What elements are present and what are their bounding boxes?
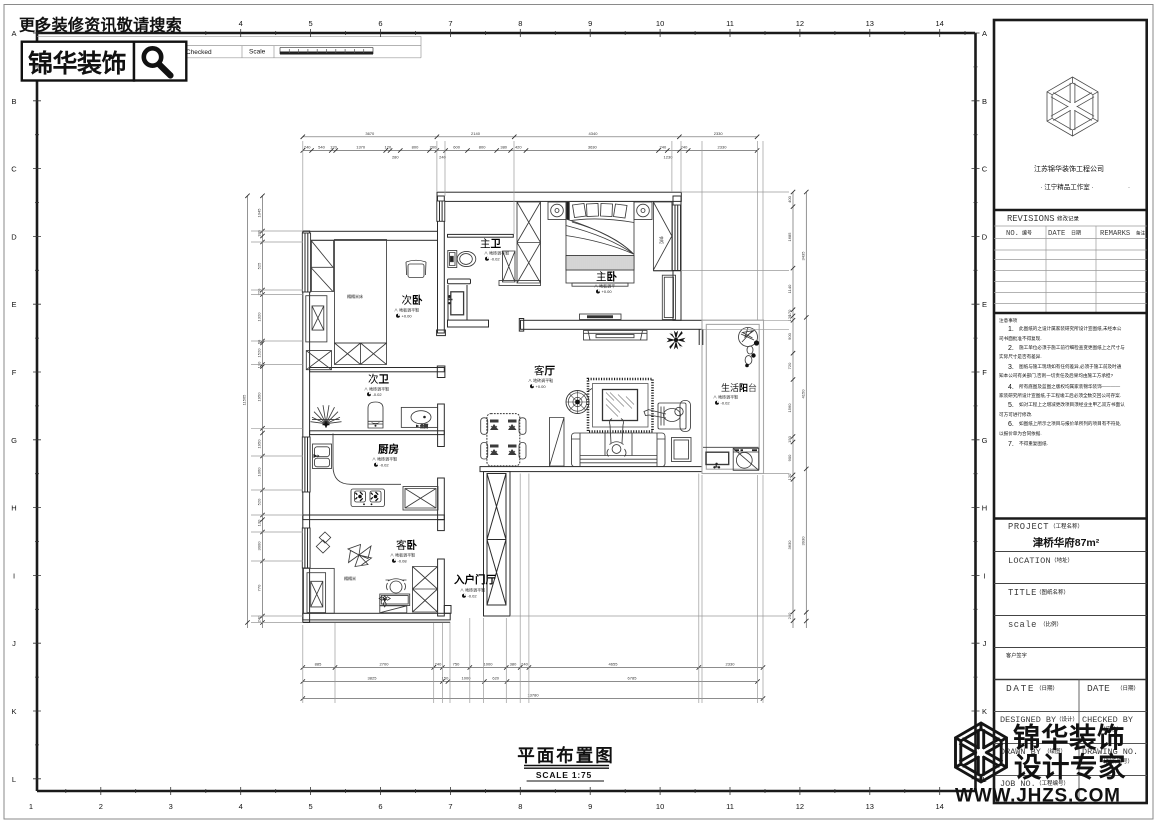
svg-text:Checked: Checked <box>186 49 212 56</box>
svg-text:REVISIONS: REVISIONS <box>1007 214 1055 224</box>
svg-text:E: E <box>11 300 16 309</box>
svg-text:∧ 地砖调平鞋: ∧ 地砖调平鞋 <box>484 250 509 256</box>
svg-text:800: 800 <box>412 145 419 150</box>
svg-text:K: K <box>982 707 987 716</box>
svg-text:14: 14 <box>936 19 944 28</box>
svg-text:240: 240 <box>439 154 446 159</box>
svg-text:3.: 3. <box>1008 364 1014 371</box>
svg-text:7: 7 <box>448 802 452 811</box>
svg-text:DATE: DATE <box>1006 683 1035 694</box>
svg-text:实际尺寸是否有差异.: 实际尺寸是否有差异. <box>999 353 1042 360</box>
svg-text:+0.00: +0.00 <box>536 384 547 389</box>
svg-text:DATE: DATE <box>1048 230 1065 238</box>
svg-text:620: 620 <box>492 676 499 681</box>
svg-text:2330: 2330 <box>718 145 728 150</box>
svg-text:380: 380 <box>500 145 507 150</box>
svg-text:7.: 7. <box>1008 441 1014 448</box>
svg-text:厨房: 厨房 <box>378 443 399 456</box>
svg-text:不得重复图纸.: 不得重复图纸. <box>1019 440 1048 447</box>
svg-text:1320: 1320 <box>257 312 262 322</box>
svg-text:A: A <box>982 29 987 38</box>
svg-text:3435: 3435 <box>800 251 805 261</box>
svg-text:所有底图及蓝图之版权均属家装锦华装饰————: 所有底图及蓝图之版权均属家装锦华装饰———— <box>1019 383 1120 390</box>
svg-text:1685: 1685 <box>787 232 792 242</box>
svg-text:3000: 3000 <box>257 541 262 551</box>
svg-text:主卧: 主卧 <box>596 270 618 283</box>
svg-text:台面: 台面 <box>420 423 428 429</box>
svg-text:-0.02: -0.02 <box>721 400 731 405</box>
svg-text:1140: 1140 <box>787 284 792 293</box>
svg-text:REMARKS: REMARKS <box>1100 230 1130 238</box>
svg-text:∧ 地砖调平鞋: ∧ 地砖调平鞋 <box>372 456 397 462</box>
svg-text:TITLE: TITLE <box>1008 588 1037 598</box>
svg-text:9: 9 <box>588 19 592 28</box>
svg-text:·: · <box>1128 185 1130 191</box>
svg-text:11565: 11565 <box>242 394 247 406</box>
svg-text:6: 6 <box>378 19 382 28</box>
svg-text:5: 5 <box>309 802 313 811</box>
svg-text:1060: 1060 <box>257 467 262 477</box>
svg-text:1000: 1000 <box>484 662 494 667</box>
svg-text:C: C <box>982 165 988 174</box>
svg-text:入户门厅: 入户门厅 <box>454 573 496 586</box>
svg-text:施工单位必须于施工前行细检查变更图纸上之尺寸与: 施工单位必须于施工前行细检查变更图纸上之尺寸与 <box>1019 344 1125 351</box>
svg-text:1370: 1370 <box>356 145 366 150</box>
svg-text:280: 280 <box>392 154 399 159</box>
svg-text:B: B <box>11 97 16 106</box>
svg-text:· 江宁精品工作室 ·: · 江宁精品工作室 · <box>1040 182 1093 191</box>
svg-text:750: 750 <box>453 662 460 667</box>
svg-text:+0.00: +0.00 <box>402 313 413 318</box>
svg-text:∧ 地砖调平鞋: ∧ 地砖调平鞋 <box>713 394 738 400</box>
svg-text:4: 4 <box>239 19 243 28</box>
svg-text:3: 3 <box>169 802 173 811</box>
svg-text:240: 240 <box>435 662 442 667</box>
svg-text:120: 120 <box>385 145 392 150</box>
svg-text:∧ 地砖调平鞋: ∧ 地砖调平鞋 <box>364 386 389 392</box>
svg-text:B: B <box>982 97 987 106</box>
svg-text:NO.: NO. <box>1006 230 1019 238</box>
svg-text:∧ 地砖调平鞋: ∧ 地砖调平鞋 <box>460 587 485 593</box>
svg-text:5.: 5. <box>1008 402 1014 409</box>
svg-text:1950: 1950 <box>257 392 262 402</box>
svg-text:A: A <box>11 29 16 38</box>
svg-text:G: G <box>11 436 17 445</box>
svg-text:锦华装饰: 锦华装饰 <box>28 49 127 78</box>
svg-text:生活阳台: 生活阳台 <box>721 382 757 393</box>
svg-text:4655: 4655 <box>609 662 619 667</box>
svg-text:榻榻米床: 榻榻米床 <box>347 293 363 299</box>
svg-text:240: 240 <box>521 662 528 667</box>
svg-text:12: 12 <box>796 802 804 811</box>
svg-text:6785: 6785 <box>628 676 638 681</box>
svg-text:1: 1 <box>29 802 33 811</box>
svg-text:-0.08: -0.08 <box>398 558 408 563</box>
svg-text:120: 120 <box>787 473 792 480</box>
svg-text:2330: 2330 <box>714 131 724 136</box>
svg-text:此图纸的之设计属家装研究所设计宣图纸,未经本公: 此图纸的之设计属家装研究所设计宣图纸,未经本公 <box>1019 325 1122 332</box>
svg-text:200: 200 <box>430 145 437 150</box>
svg-text:60: 60 <box>257 339 262 344</box>
svg-text:4.: 4. <box>1008 384 1014 391</box>
svg-text:家装研究所设计宣图纸,于工程竣工后必须全数交回公司存案.: 家装研究所设计宣图纸,于工程竣工后必须全数交回公司存案. <box>999 392 1121 399</box>
svg-text:9: 9 <box>588 802 592 811</box>
svg-text:150: 150 <box>442 676 449 681</box>
svg-text:11: 11 <box>726 19 734 28</box>
svg-text:H: H <box>11 504 16 513</box>
svg-text:K: K <box>11 707 16 716</box>
svg-text:1.: 1. <box>1008 326 1014 333</box>
svg-text:D: D <box>982 232 988 241</box>
svg-text:520: 520 <box>257 498 262 505</box>
svg-text:800: 800 <box>479 145 486 150</box>
svg-text:客厅: 客厅 <box>534 364 556 377</box>
svg-text:2700: 2700 <box>380 662 390 667</box>
svg-text:编号: 编号 <box>1022 230 1032 237</box>
svg-text:770: 770 <box>257 584 262 591</box>
svg-text:3670: 3670 <box>365 131 375 136</box>
svg-text:（比例）: （比例） <box>1040 620 1062 628</box>
svg-text:江苏锦华装饰工程公司: 江苏锦华装饰工程公司 <box>1034 164 1104 173</box>
svg-text:6.: 6. <box>1008 421 1014 428</box>
svg-text:5: 5 <box>309 19 313 28</box>
svg-text:DATE: DATE <box>1087 683 1110 694</box>
svg-text:（图纸名称）: （图纸名称） <box>1036 588 1069 596</box>
svg-text:平面布置图: 平面布置图 <box>517 746 615 766</box>
svg-text:240: 240 <box>681 145 688 150</box>
svg-text:津桥华府87m²: 津桥华府87m² <box>1033 536 1100 549</box>
svg-text:420: 420 <box>515 145 522 150</box>
svg-text:次卧: 次卧 <box>402 294 424 307</box>
svg-text:540: 540 <box>318 145 325 150</box>
svg-text:E: E <box>982 300 987 309</box>
svg-text:（日期）: （日期） <box>1036 685 1058 692</box>
svg-text:2330: 2330 <box>726 662 736 667</box>
svg-text:1560: 1560 <box>787 403 792 413</box>
svg-text:3630: 3630 <box>787 540 792 550</box>
svg-text:14: 14 <box>936 802 944 811</box>
svg-text:10: 10 <box>656 19 664 28</box>
svg-text:客卧: 客卧 <box>396 539 418 552</box>
svg-text:3825: 3825 <box>368 676 378 681</box>
svg-text:锦华装饰: 锦华装饰 <box>1013 722 1125 753</box>
svg-text:240: 240 <box>304 145 311 150</box>
svg-text:-0.02: -0.02 <box>468 593 478 598</box>
svg-text:4150: 4150 <box>800 389 805 399</box>
svg-text:720: 720 <box>787 362 792 369</box>
svg-text:3630: 3630 <box>588 145 598 150</box>
svg-text:J: J <box>983 639 987 648</box>
svg-text:图纸与施工现场如有任何差异,必须于施工前及时通: 图纸与施工现场如有任何差异,必须于施工前及时通 <box>1019 363 1122 370</box>
svg-text:12: 12 <box>796 19 804 28</box>
svg-text:次卫: 次卫 <box>368 373 390 386</box>
svg-text:以报价单为合同依据.: 以报价单为合同依据. <box>999 430 1042 437</box>
svg-text:（日期）: （日期） <box>1117 685 1139 692</box>
svg-text:240: 240 <box>660 145 667 150</box>
svg-text:400: 400 <box>787 195 792 202</box>
svg-text:900: 900 <box>787 454 792 461</box>
svg-text:备注: 备注 <box>1136 230 1145 237</box>
svg-text:525: 525 <box>257 262 262 269</box>
svg-text:更多装修资讯敬请搜索: 更多装修资讯敬请搜索 <box>19 16 182 35</box>
svg-text:SCALE 1:75: SCALE 1:75 <box>536 770 592 780</box>
svg-text:知本公司有关部门,否则一切责任及后果均由施工方承担?: 知本公司有关部门,否则一切责任及后果均由施工方承担? <box>999 372 1114 379</box>
svg-text:1045: 1045 <box>257 208 262 218</box>
svg-text:∧ 地板调平鞋: ∧ 地板调平鞋 <box>394 307 419 313</box>
svg-text:2: 2 <box>99 802 103 811</box>
svg-text:scale: scale <box>1008 620 1037 630</box>
svg-text:D: D <box>11 232 17 241</box>
svg-text:I: I <box>983 571 985 580</box>
svg-text:F: F <box>12 368 17 377</box>
svg-text:8: 8 <box>518 802 522 811</box>
svg-text:6: 6 <box>378 802 382 811</box>
svg-text:G: G <box>982 436 988 445</box>
svg-text:150: 150 <box>787 435 792 442</box>
svg-text:L: L <box>12 775 16 784</box>
svg-text:10: 10 <box>656 802 664 811</box>
svg-text:2140: 2140 <box>471 131 481 136</box>
svg-text:J: J <box>12 639 16 648</box>
svg-text:日期: 日期 <box>1071 231 1081 237</box>
svg-text:∧ 地板调平: ∧ 地板调平 <box>594 283 615 289</box>
svg-text:380: 380 <box>510 662 517 667</box>
svg-text:8: 8 <box>518 19 522 28</box>
svg-text:（工程名称）: （工程名称） <box>1050 522 1083 530</box>
svg-text:180: 180 <box>257 229 262 236</box>
svg-text:I: I <box>13 571 15 580</box>
svg-text:PROJECT: PROJECT <box>1008 522 1049 532</box>
svg-text:4340: 4340 <box>589 131 599 136</box>
svg-text:1520: 1520 <box>257 348 262 358</box>
svg-text:可方可进行修改.: 可方可进行修改. <box>999 411 1032 418</box>
svg-text:∧ 地砖调平鞋: ∧ 地砖调平鞋 <box>528 377 553 383</box>
svg-text:H: H <box>982 504 987 513</box>
svg-text:13: 13 <box>866 802 874 811</box>
svg-text:13: 13 <box>866 19 874 28</box>
svg-text:-0.02: -0.02 <box>491 256 501 261</box>
svg-text:900: 900 <box>787 332 792 339</box>
svg-text:司书面批准不得复现.: 司书面批准不得复现. <box>999 335 1042 342</box>
svg-text:C: C <box>11 165 17 174</box>
svg-text:如图纸上所示之项目与报价单所列的项目有不符处,: 如图纸上所示之项目与报价单所列的项目有不符处, <box>1019 420 1121 427</box>
svg-text:F: F <box>982 368 987 377</box>
svg-text:如对工程上之增减更改项目须经业主甲乙双方书面认: 如对工程上之增减更改项目须经业主甲乙双方书面认 <box>1019 401 1125 408</box>
svg-text:WWW.JHZS.COM: WWW.JHZS.COM <box>955 786 1121 807</box>
svg-text:-0.02: -0.02 <box>380 462 390 467</box>
svg-text:LOCATION: LOCATION <box>1008 556 1051 566</box>
svg-text:4: 4 <box>239 802 243 811</box>
svg-text:修改记录: 修改记录 <box>1057 215 1080 223</box>
svg-text:11: 11 <box>726 802 734 811</box>
svg-text:（地址）: （地址） <box>1051 556 1073 564</box>
svg-text:榻榻米: 榻榻米 <box>344 575 356 581</box>
svg-text:∧ 地板调平鞋: ∧ 地板调平鞋 <box>390 552 415 558</box>
svg-text:3930: 3930 <box>800 536 805 546</box>
svg-text:240: 240 <box>787 612 792 619</box>
svg-text:衣柜: 衣柜 <box>659 236 665 244</box>
svg-text:2.: 2. <box>1008 345 1014 352</box>
svg-text:130: 130 <box>257 519 262 526</box>
svg-text:7: 7 <box>448 19 452 28</box>
svg-text:+0.00: +0.00 <box>602 289 613 294</box>
svg-text:120: 120 <box>330 145 337 150</box>
svg-text:Scale: Scale <box>249 49 266 56</box>
svg-text:-0.02: -0.02 <box>373 392 383 397</box>
svg-text:主卫: 主卫 <box>480 238 502 250</box>
svg-text:1950: 1950 <box>257 439 262 449</box>
svg-text:885: 885 <box>315 662 322 667</box>
svg-text:注意事项: 注意事项 <box>999 317 1018 324</box>
svg-text:600: 600 <box>453 145 460 150</box>
svg-text:设计专家: 设计专家 <box>1014 752 1126 783</box>
svg-text:客户签字: 客户签字 <box>1006 651 1027 659</box>
